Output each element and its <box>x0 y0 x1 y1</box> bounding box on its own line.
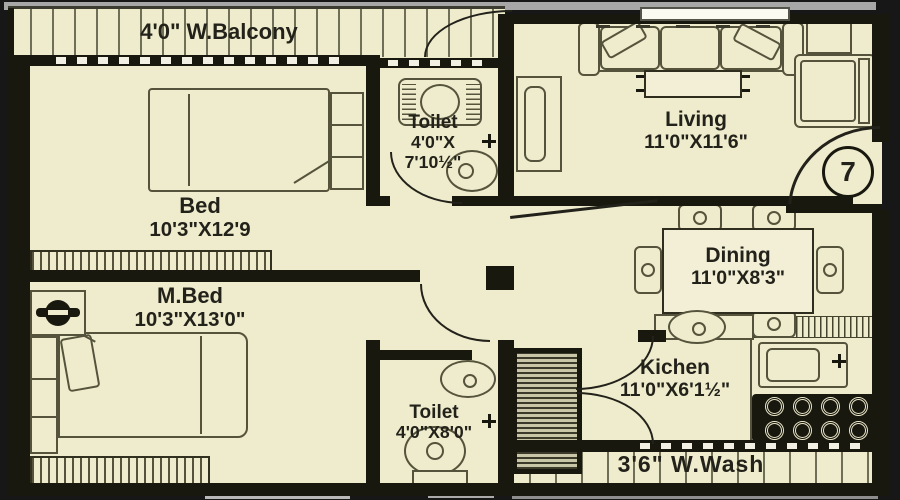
dining-label: Dining 11'0"X8'3" <box>662 244 814 289</box>
toilet-bottom-dims: 4'0"X8'0" <box>372 423 496 443</box>
master-bed-name: M.Bed <box>92 284 288 309</box>
entrance-door-leaf <box>786 204 882 213</box>
side-table <box>806 22 852 54</box>
bed-name: Bed <box>110 194 290 219</box>
kitchen-label: Kichen 11'0"X6'1½" <box>568 356 782 401</box>
wall <box>8 8 14 57</box>
stove-burner <box>821 421 840 440</box>
toilet-bottom-basin <box>440 360 496 398</box>
armchair-backrest <box>858 58 870 124</box>
coffee-table-tick <box>636 89 644 92</box>
ceiling-fan-icon <box>45 300 71 326</box>
dining-dims: 11'0"X8'3" <box>662 268 814 290</box>
kitchen-name: Kichen <box>568 356 782 380</box>
sofa-cushion <box>660 26 720 70</box>
master-bed-fold-line <box>200 336 202 434</box>
wall <box>366 196 390 206</box>
living-dims: 11'0"X11'6" <box>598 132 794 154</box>
toilet-top-dims1: 4'0"X <box>374 133 492 153</box>
living-name: Living <box>598 108 794 132</box>
armchair-seat <box>800 60 856 122</box>
toilet-bottom-name: Toilet <box>372 402 496 423</box>
wash-basin <box>668 310 726 344</box>
bed-dims: 10'3"X12'9 <box>110 219 290 242</box>
kitchen-dims: 11'0"X6'1½" <box>568 380 782 402</box>
window-living-sill <box>596 25 796 28</box>
bed-fold-line <box>188 94 190 186</box>
balcony-label: 4'0" W.Balcony <box>88 20 350 45</box>
kitchen-faucet-icon <box>832 354 846 368</box>
balcony-text: 4'0" W.Balcony <box>88 20 350 45</box>
tv-unit-inner <box>524 86 546 162</box>
wash-label: 3'6" W.Wash <box>538 452 844 478</box>
sofa-armrest <box>578 22 600 76</box>
toilet-top-name: Toilet <box>374 112 492 133</box>
coffee-table-tick <box>636 75 644 78</box>
wall <box>498 340 514 492</box>
wall <box>872 210 890 496</box>
bedside-shelf-line <box>30 378 58 380</box>
stove-burner <box>849 397 868 416</box>
bedside-shelf-line <box>30 416 58 418</box>
bed-shelf-line <box>332 124 362 126</box>
wash-text: 3'6" W.Wash <box>538 452 844 478</box>
unit-number: 7 <box>840 156 856 187</box>
bed-label: Bed 10'3"X12'9 <box>110 194 290 242</box>
wall <box>872 14 890 142</box>
master-bed-dims: 10'3"X13'0" <box>92 309 288 332</box>
wall <box>8 483 882 496</box>
toilet-bottom-label: Toilet 4'0"X8'0" <box>372 402 496 443</box>
master-bed-label: M.Bed 10'3"X13'0" <box>92 284 288 332</box>
dining-name: Dining <box>662 244 814 268</box>
stove-burner <box>793 421 812 440</box>
toilet-top-dims2: 7'10½" <box>374 153 492 173</box>
dining-chair <box>752 310 796 338</box>
floor-plan: 4'0" W.Balcony Bed 10'3"X12'9 Toilet 4'0… <box>0 0 900 500</box>
stove-burner <box>821 397 840 416</box>
wall <box>486 266 514 290</box>
coffee-table <box>644 70 742 98</box>
coffee-table-tick <box>742 89 750 92</box>
toilet-bottom-wc-drain <box>426 442 444 460</box>
living-label: Living 11'0"X11'6" <box>598 108 794 153</box>
coffee-table-tick <box>742 75 750 78</box>
bed-headboard-shelf <box>330 92 364 190</box>
unit-number-badge: 7 <box>822 146 874 198</box>
wall <box>366 350 472 360</box>
window-living <box>640 7 790 21</box>
wall <box>22 270 420 282</box>
toilet-top-label: Toilet 4'0"X 7'10½" <box>374 112 492 173</box>
bed-shelf-line <box>332 156 362 158</box>
bedside-unit <box>30 336 58 454</box>
wall <box>8 6 505 9</box>
wardrobe-master-bed <box>30 456 210 486</box>
window-toilet-top <box>388 60 492 66</box>
stove-burner <box>793 397 812 416</box>
dining-chair <box>634 246 662 294</box>
window-bed-balcony <box>56 57 342 64</box>
stove-burner <box>765 421 784 440</box>
window-kitchen <box>640 443 870 449</box>
stove-burner <box>849 421 868 440</box>
dining-chair <box>816 246 844 294</box>
